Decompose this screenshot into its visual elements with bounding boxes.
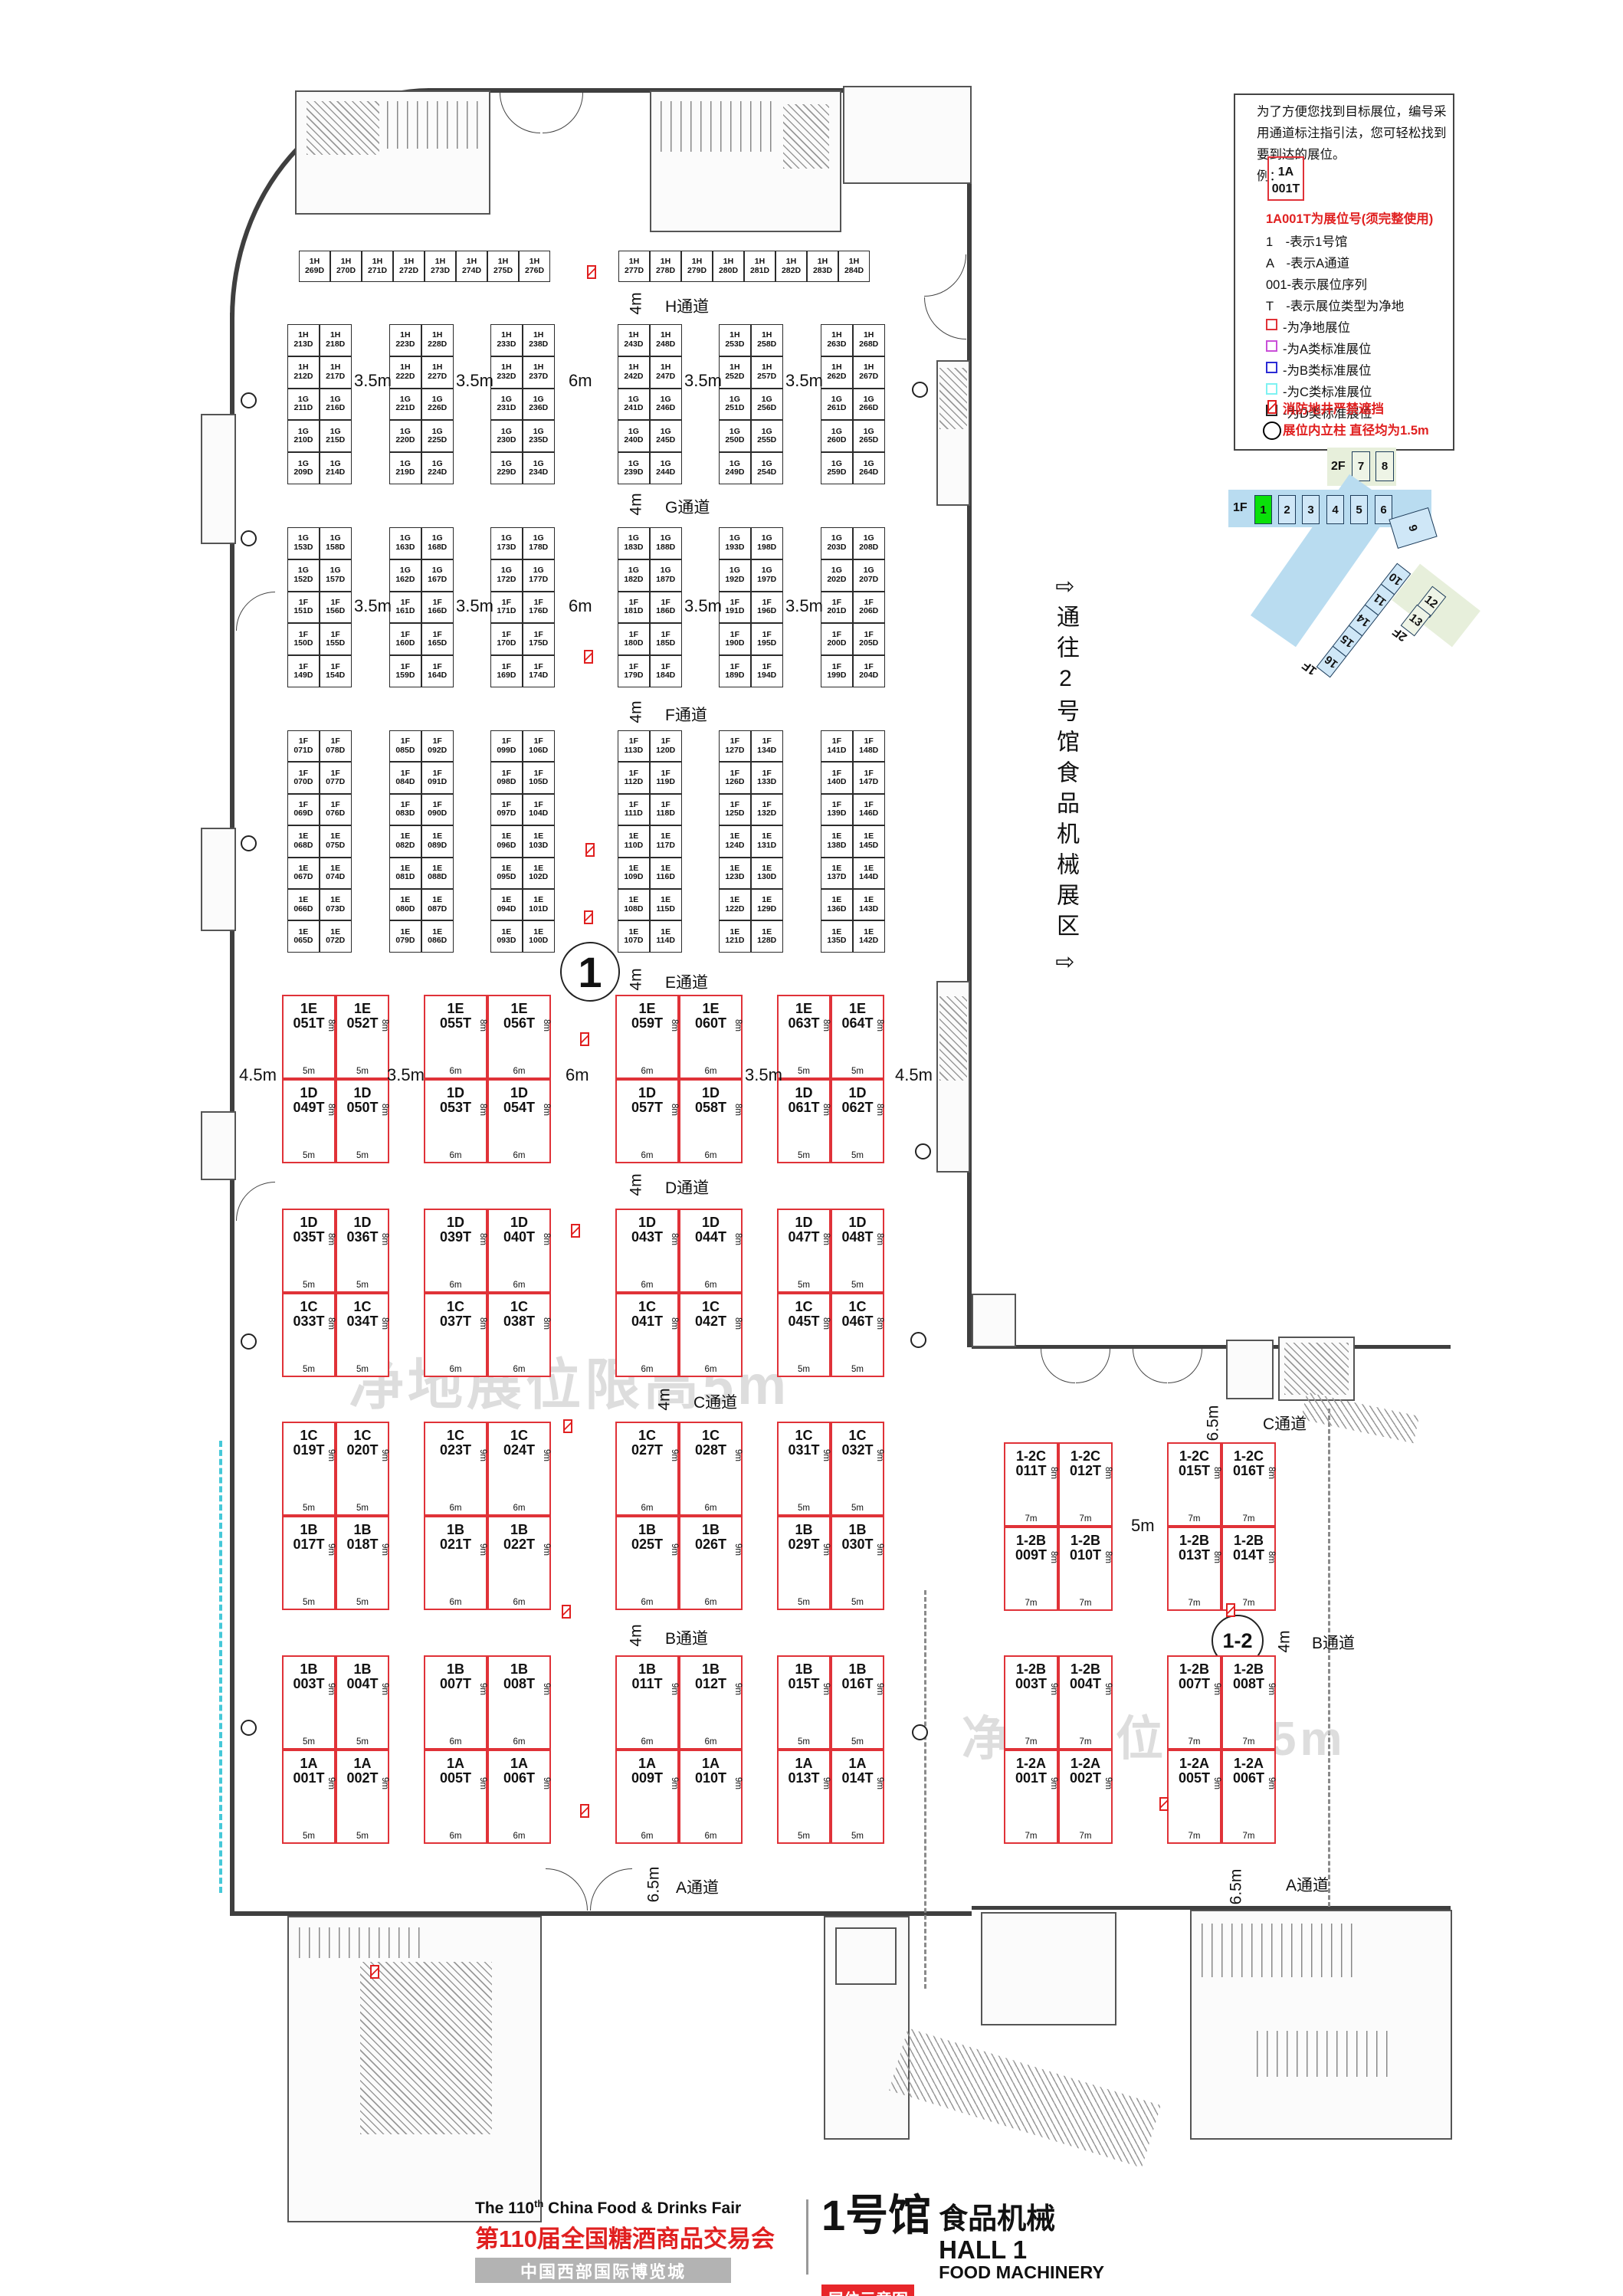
booth-1E-116D: 1E116D xyxy=(650,858,682,889)
booth-1E-110D: 1E110D xyxy=(618,825,650,857)
booth-1C-033T: 1C033T5m8m xyxy=(282,1293,336,1377)
booth-1-2B-010T: 1-2B010T7m8m xyxy=(1058,1527,1113,1611)
booth-1F-181D: 1F181D xyxy=(618,592,650,624)
booth-1H-212D: 1H212D xyxy=(287,356,320,389)
column-circle-1 xyxy=(241,392,257,408)
booth-1C-038T: 1C038T6m8m xyxy=(487,1293,551,1377)
booth-1D-053T: 1D053T6m8m xyxy=(424,1079,487,1163)
booth-1F-076D: 1F076D xyxy=(320,794,352,825)
booth-1D-050T: 1D050T5m8m xyxy=(336,1079,389,1163)
legend-fire-icon xyxy=(1267,400,1277,414)
aisle-dim-C通道: 4m xyxy=(656,1388,674,1410)
booth-1F-106D: 1F106D xyxy=(523,730,555,762)
booth-1E-124D: 1E124D xyxy=(719,825,751,857)
booth-1G-215D: 1G215D xyxy=(320,420,352,452)
booth-1E-144D: 1E144D xyxy=(853,858,885,889)
booth-1F-180D: 1F180D xyxy=(618,623,650,655)
booth-1B-029T: 1B029T5m9m xyxy=(777,1516,831,1610)
booth-1E-108D: 1E108D xyxy=(618,889,650,920)
booth-1E-088D: 1E088D xyxy=(421,858,454,889)
booth-1E-072D: 1E072D xyxy=(320,920,352,952)
booth-1H-243D: 1H243D xyxy=(618,324,650,356)
booth-1G-240D: 1G240D xyxy=(618,420,650,452)
booth-1F-199D: 1F199D xyxy=(821,655,853,687)
booth-1F-176D: 1F176D xyxy=(523,592,555,624)
booth-1C-045T: 1C045T5m8m xyxy=(777,1293,831,1377)
aisle-dim-E通道: 4m xyxy=(628,968,646,990)
bottomleft-toilet-stalls xyxy=(299,1927,421,1958)
annex-stair-hatch xyxy=(1284,1343,1349,1395)
booth-1H-270D: 1H270D xyxy=(330,251,362,282)
booth-1G-241D: 1G241D xyxy=(618,389,650,421)
booth-1H-218D: 1H218D xyxy=(320,324,352,356)
booth-1E-065D: 1E065D xyxy=(287,920,320,952)
booth-1F-085D: 1F085D xyxy=(389,730,421,762)
column-circle-4 xyxy=(241,1333,257,1350)
door-arc-annex-corridor-3 xyxy=(1133,1349,1167,1383)
booth-1E-117D: 1E117D xyxy=(650,825,682,857)
booth-1B-015T: 1B015T5m9m xyxy=(777,1655,831,1750)
corridor-note: ⇨ 通往2号馆食品机械展区 ⇨ xyxy=(1047,573,1084,976)
block-topright xyxy=(843,86,972,184)
booth-1B-017T: 1B017T5m9m xyxy=(282,1516,336,1610)
band3-gap-dim-1: 3.5m xyxy=(456,596,493,616)
annex-aisle-label-A通道: A通道 xyxy=(1286,1873,1329,1896)
booth-1E-103D: 1E103D xyxy=(523,825,555,857)
stairs-hatch-topcenter xyxy=(783,104,829,169)
legend-key-2: A -表示A通道 xyxy=(1266,253,1349,271)
booth-1C-023T: 1C023T6m9m xyxy=(424,1422,487,1516)
legend-type-label-2: -为B类标准展位 xyxy=(1283,360,1372,379)
booth-1H-263D: 1H263D xyxy=(821,324,853,356)
booth-1D-044T: 1D044T6m8m xyxy=(679,1209,743,1293)
booth-1F-155D: 1F155D xyxy=(320,623,352,655)
aisle-label-B通道: B通道 xyxy=(665,1626,708,1649)
legend-example-line1: 1A xyxy=(1269,164,1303,181)
booth-1H-272D: 1H272D xyxy=(393,251,425,282)
booth-1G-220D: 1G220D xyxy=(389,420,421,452)
annex-aisle-dim-C通道: 6.5m xyxy=(1204,1405,1222,1442)
booth-1E-063T: 1E063T5m8m xyxy=(777,995,831,1079)
booth-1F-156D: 1F156D xyxy=(320,592,352,624)
booth-1B-030T: 1B030T5m9m xyxy=(831,1516,884,1610)
annex-aisle-label-B通道: B通道 xyxy=(1312,1631,1355,1654)
bottomleft-stairs-hatch xyxy=(360,1962,492,2134)
booth-1G-261D: 1G261D xyxy=(821,389,853,421)
fire-well-icon-8 xyxy=(580,1804,589,1818)
band2-gap-dim-4: 3.5m xyxy=(785,371,823,391)
booth-1C-041T: 1C041T6m8m xyxy=(615,1293,679,1377)
legend-example-line2: 001T xyxy=(1269,181,1303,198)
booth-1E-145D: 1E145D xyxy=(853,825,885,857)
booth-1G-202D: 1G202D xyxy=(821,559,853,592)
booth-1F-206D: 1F206D xyxy=(853,592,885,624)
booth-1G-167D: 1G167D xyxy=(421,559,454,592)
fire-well-icon-3 xyxy=(584,910,593,924)
booth-1F-159D: 1F159D xyxy=(389,655,421,687)
annex-boundary-dashed-right xyxy=(1328,1409,1330,1907)
annex-aisle-label-C通道: C通道 xyxy=(1263,1412,1307,1435)
tband-gap-dim-2: 6m xyxy=(566,1065,589,1085)
booth-1E-100D: 1E100D xyxy=(523,920,555,952)
booth-1E-123D: 1E123D xyxy=(719,858,751,889)
booth-1F-174D: 1F174D xyxy=(523,655,555,687)
booth-1F-171D: 1F171D xyxy=(490,592,523,624)
booth-1G-249D: 1G249D xyxy=(719,452,751,484)
booth-1D-036T: 1D036T5m8m xyxy=(336,1209,389,1293)
booth-1H-237D: 1H237D xyxy=(523,356,555,389)
annex-aisle-dim-B通道: 4m xyxy=(1276,1630,1294,1652)
legend-example-booth: 1A 001T xyxy=(1267,156,1304,201)
booth-1F-090D: 1F090D xyxy=(421,794,454,825)
booth-1E-130D: 1E130D xyxy=(751,858,783,889)
legend-key-1: 1 -表示1号馆 xyxy=(1266,231,1347,250)
booth-1D-043T: 1D043T6m8m xyxy=(615,1209,679,1293)
booth-1B-025T: 1B025T6m9m xyxy=(615,1516,679,1610)
booth-1-2A-002T: 1-2A002T7m9m xyxy=(1058,1750,1113,1844)
annex-toilet-stalls xyxy=(1202,1924,1355,1977)
booth-1F-149D: 1F149D xyxy=(287,655,320,687)
booth-1F-105D: 1F105D xyxy=(523,762,555,793)
booth-1E-052T: 1E052T5m8m xyxy=(336,995,389,1079)
annex-ramp-hatch xyxy=(1301,1392,1419,1443)
booth-1B-012T: 1B012T6m9m xyxy=(679,1655,743,1750)
booth-1E-131D: 1E131D xyxy=(751,825,783,857)
legend-fire-note: 消防地井严禁遮挡 xyxy=(1283,399,1384,417)
booth-1H-258D: 1H258D xyxy=(751,324,783,356)
booth-1G-231D: 1G231D xyxy=(490,389,523,421)
left-wall-block-2 xyxy=(201,828,236,931)
booth-1F-151D: 1F151D xyxy=(287,592,320,624)
aisle-label-E通道: E通道 xyxy=(665,970,708,993)
booth-1F-133D: 1F133D xyxy=(751,762,783,793)
booth-1H-223D: 1H223D xyxy=(389,324,421,356)
booth-1A-013T: 1A013T5m9m xyxy=(777,1750,831,1844)
booth-1A-005T: 1A005T6m9m xyxy=(424,1750,487,1844)
booth-1E-128D: 1E128D xyxy=(751,920,783,952)
aisle-label-C通道: C通道 xyxy=(693,1390,737,1413)
booth-1-2B-014T: 1-2B014T7m8m xyxy=(1221,1527,1276,1611)
booth-1H-217D: 1H217D xyxy=(320,356,352,389)
booth-1A-010T: 1A010T6m9m xyxy=(679,1750,743,1844)
booth-1H-278D: 1H278D xyxy=(650,251,681,282)
legend-key-3: 001-表示展位序列 xyxy=(1266,274,1367,293)
booth-1G-178D: 1G178D xyxy=(523,527,555,559)
minimap-hall-5: 5 xyxy=(1350,495,1368,524)
booth-1F-148D: 1F148D xyxy=(853,730,885,762)
band3-gap-dim-3: 3.5m xyxy=(684,596,722,616)
booth-1H-279D: 1H279D xyxy=(681,251,713,282)
booth-1C-031T: 1C031T5m9m xyxy=(777,1422,831,1516)
booth-1G-245D: 1G245D xyxy=(650,420,682,452)
legend-type-label-0: -为净地展位 xyxy=(1283,317,1350,336)
booth-1B-004T: 1B004T5m9m xyxy=(336,1655,389,1750)
booth-1E-121D: 1E121D xyxy=(719,920,751,952)
booth-1H-222D: 1H222D xyxy=(389,356,421,389)
door-arc-annex-corridor-4 xyxy=(1168,1349,1202,1383)
booth-1E-056T: 1E056T6m8m xyxy=(487,995,551,1079)
booth-1B-021T: 1B021T6m9m xyxy=(424,1516,487,1610)
booth-1G-221D: 1G221D xyxy=(389,389,421,421)
legend-swatch-0 xyxy=(1266,319,1277,330)
booth-1E-102D: 1E102D xyxy=(523,858,555,889)
bottom-elevator-cab xyxy=(835,1927,897,1985)
booth-1F-119D: 1F119D xyxy=(650,762,682,793)
booth-1E-109D: 1E109D xyxy=(618,858,650,889)
booth-1F-160D: 1F160D xyxy=(389,623,421,655)
booth-1F-118D: 1F118D xyxy=(650,794,682,825)
aisle-dim-D通道: 4m xyxy=(628,1173,646,1196)
booth-1G-225D: 1G225D xyxy=(421,420,454,452)
legend-intro-line-1: 为了方便您找到目标展位，编号采 xyxy=(1257,101,1447,120)
column-circle-7 xyxy=(241,1720,257,1736)
footer-venue-bar: 中国西部国际博览城 xyxy=(475,2258,731,2283)
footer-fair-en: The 110th China Food & Drinks Fair xyxy=(475,2198,797,2218)
booth-1E-135D: 1E135D xyxy=(821,920,853,952)
booth-1F-185D: 1F185D xyxy=(650,623,682,655)
door-arc-left-wall-2 xyxy=(236,1182,275,1221)
booth-1G-203D: 1G203D xyxy=(821,527,853,559)
booth-1B-003T: 1B003T5m9m xyxy=(282,1655,336,1750)
booth-1E-066D: 1E066D xyxy=(287,889,320,920)
booth-1G-187D: 1G187D xyxy=(650,559,682,592)
booth-1E-075D: 1E075D xyxy=(320,825,352,857)
booth-1F-140D: 1F140D xyxy=(821,762,853,793)
booth-1G-152D: 1G152D xyxy=(287,559,320,592)
booth-1-2B-008T: 1-2B008T7m9m xyxy=(1221,1655,1276,1750)
booth-1E-142D: 1E142D xyxy=(853,920,885,952)
booth-1H-273D: 1H273D xyxy=(425,251,456,282)
booth-1F-111D: 1F111D xyxy=(618,794,650,825)
booth-1C-034T: 1C034T5m8m xyxy=(336,1293,389,1377)
minimap-hall-7: 7 xyxy=(1352,451,1370,481)
booth-1F-112D: 1F112D xyxy=(618,762,650,793)
minimap-hall-3: 3 xyxy=(1302,495,1320,524)
booth-1E-129D: 1E129D xyxy=(751,889,783,920)
booth-1F-092D: 1F092D xyxy=(421,730,454,762)
booth-1F-191D: 1F191D xyxy=(719,592,751,624)
booth-1H-281D: 1H281D xyxy=(744,251,775,282)
annex-bottom-block xyxy=(981,1912,1116,2025)
band3-gap-dim-0: 3.5m xyxy=(354,596,392,616)
bottom-ramp-hatch xyxy=(889,2028,1161,2167)
booth-1D-047T: 1D047T5m8m xyxy=(777,1209,831,1293)
minimap-1f-label: 1F xyxy=(1233,501,1248,515)
booth-1B-008T: 1B008T6m9m xyxy=(487,1655,551,1750)
booth-1H-276D: 1H276D xyxy=(519,251,550,282)
right-stair-hatch-2 xyxy=(939,996,967,1081)
fire-well-icon-7 xyxy=(562,1605,571,1619)
booth-1G-183D: 1G183D xyxy=(618,527,650,559)
band3-gap-dim-4: 3.5m xyxy=(785,596,823,616)
booth-1G-192D: 1G192D xyxy=(719,559,751,592)
booth-1F-078D: 1F078D xyxy=(320,730,352,762)
booth-1F-195D: 1F195D xyxy=(751,623,783,655)
legend-column-note: 展位内立柱 直径均为1.5m xyxy=(1283,420,1429,438)
booth-1D-048T: 1D048T5m8m xyxy=(831,1209,884,1293)
booth-1F-189D: 1F189D xyxy=(719,655,751,687)
booth-1G-188D: 1G188D xyxy=(650,527,682,559)
booth-1F-083D: 1F083D xyxy=(389,794,421,825)
booth-1G-158D: 1G158D xyxy=(320,527,352,559)
booth-1C-027T: 1C027T6m9m xyxy=(615,1422,679,1516)
booth-1E-055T: 1E055T6m8m xyxy=(424,995,487,1079)
booth-1G-230D: 1G230D xyxy=(490,420,523,452)
booth-1E-093D: 1E093D xyxy=(490,920,523,952)
booth-1B-016T: 1B016T5m9m xyxy=(831,1655,884,1750)
booth-1G-236D: 1G236D xyxy=(523,389,555,421)
booth-1G-226D: 1G226D xyxy=(421,389,454,421)
footer-hall-en: HALL 1 xyxy=(939,2237,1104,2262)
booth-1G-254D: 1G254D xyxy=(751,452,783,484)
fire-well-icon-2 xyxy=(585,843,595,857)
right-wall-connector xyxy=(972,1294,1016,1347)
booth-1F-091D: 1F091D xyxy=(421,762,454,793)
booth-1E-081D: 1E081D xyxy=(389,858,421,889)
booth-1G-172D: 1G172D xyxy=(490,559,523,592)
booth-1G-224D: 1G224D xyxy=(421,452,454,484)
booth-1-2B-013T: 1-2B013T7m8m xyxy=(1167,1527,1221,1611)
booth-1H-262D: 1H262D xyxy=(821,356,853,389)
column-circle-6 xyxy=(915,1143,931,1159)
booth-1E-095D: 1E095D xyxy=(490,858,523,889)
booth-1B-011T: 1B011T6m9m xyxy=(615,1655,679,1750)
booth-1F-146D: 1F146D xyxy=(853,794,885,825)
corridor-arrow-bottom: ⇨ xyxy=(1047,949,1084,976)
booth-1E-115D: 1E115D xyxy=(650,889,682,920)
booth-1-2B-004T: 1-2B004T7m9m xyxy=(1058,1655,1113,1750)
column-circle-8 xyxy=(912,1724,928,1740)
booth-1G-211D: 1G211D xyxy=(287,389,320,421)
fire-well-icon-5 xyxy=(571,1224,580,1238)
footer-divider xyxy=(806,2199,808,2275)
aisle-dim-F通道: 4m xyxy=(628,700,646,723)
booth-1F-097D: 1F097D xyxy=(490,794,523,825)
aisle-label-D通道: D通道 xyxy=(665,1176,709,1199)
booth-1E-051T: 1E051T5m8m xyxy=(282,995,336,1079)
booth-1E-080D: 1E080D xyxy=(389,889,421,920)
fire-well-icon-11 xyxy=(370,1965,379,1979)
booth-1F-104D: 1F104D xyxy=(523,794,555,825)
tband-gap-dim-3: 3.5m xyxy=(745,1065,782,1085)
annex-boundary-dashed-left xyxy=(924,1590,926,1989)
legend-swatch-3 xyxy=(1266,383,1277,395)
booth-1C-046T: 1C046T5m8m xyxy=(831,1293,884,1377)
column-circle-3 xyxy=(241,835,257,851)
legend-column-icon xyxy=(1263,421,1281,440)
aisle-label-G通道: G通道 xyxy=(665,495,710,518)
booth-1H-233D: 1H233D xyxy=(490,324,523,356)
aisle-dim-H通道: 4m xyxy=(628,292,646,314)
booth-1A-002T: 1A002T5m9m xyxy=(336,1750,389,1844)
booth-1F-166D: 1F166D xyxy=(421,592,454,624)
booth-1H-247D: 1H247D xyxy=(650,356,682,389)
fire-well-icon-4 xyxy=(580,1032,589,1046)
booth-1E-060T: 1E060T6m8m xyxy=(679,995,743,1079)
booth-1A-006T: 1A006T6m9m xyxy=(487,1750,551,1844)
booth-1G-251D: 1G251D xyxy=(719,389,751,421)
booth-1F-164D: 1F164D xyxy=(421,655,454,687)
door-arc-annex-corridor-1 xyxy=(1041,1349,1075,1383)
booth-1G-260D: 1G260D xyxy=(821,420,853,452)
booth-1F-184D: 1F184D xyxy=(650,655,682,687)
booth-1G-168D: 1G168D xyxy=(421,527,454,559)
tband-gap-dim-1: 3.5m xyxy=(387,1065,425,1085)
booth-1C-028T: 1C028T6m9m xyxy=(679,1422,743,1516)
aisle-dim-B通道: 4m xyxy=(628,1624,646,1646)
booth-1G-259D: 1G259D xyxy=(821,452,853,484)
booth-1E-136D: 1E136D xyxy=(821,889,853,920)
toilet-stalls-topleft xyxy=(387,101,479,149)
annex-toilet-stalls-2 xyxy=(1257,2031,1395,2077)
band2-gap-dim-0: 3.5m xyxy=(354,371,392,391)
booth-1D-049T: 1D049T5m8m xyxy=(282,1079,336,1163)
booth-1H-253D: 1H253D xyxy=(719,324,751,356)
booth-1D-058T: 1D058T6m8m xyxy=(679,1079,743,1163)
booth-1G-219D: 1G219D xyxy=(389,452,421,484)
minimap-2f-label: 2F xyxy=(1331,460,1346,474)
booth-1H-227D: 1H227D xyxy=(421,356,454,389)
legend-booth-no-note: 1A001T为展位号(须完整使用) xyxy=(1266,208,1433,227)
booth-1F-147D: 1F147D xyxy=(853,762,885,793)
booth-1C-042T: 1C042T6m8m xyxy=(679,1293,743,1377)
right-stair-hatch-1 xyxy=(939,368,967,429)
booth-1G-216D: 1G216D xyxy=(320,389,352,421)
booth-1F-139D: 1F139D xyxy=(821,794,853,825)
left-wall-block-3 xyxy=(201,1111,236,1180)
booth-1H-282D: 1H282D xyxy=(775,251,807,282)
door-arc-bottom-2 xyxy=(590,1868,632,1911)
booth-1E-073D: 1E073D xyxy=(320,889,352,920)
aisle-label-H通道: H通道 xyxy=(665,294,709,317)
booth-1F-077D: 1F077D xyxy=(320,762,352,793)
booth-1F-069D: 1F069D xyxy=(287,794,320,825)
booth-1D-062T: 1D062T5m8m xyxy=(831,1079,884,1163)
annex-mid-gap-dim: 5m xyxy=(1131,1516,1155,1536)
booth-1H-280D: 1H280D xyxy=(713,251,744,282)
booth-1E-137D: 1E137D xyxy=(821,858,853,889)
booth-1G-157D: 1G157D xyxy=(320,559,352,592)
booth-1H-242D: 1H242D xyxy=(618,356,650,389)
door-arc-top-entrance-1 xyxy=(500,93,540,133)
booth-1C-037T: 1C037T6m8m xyxy=(424,1293,487,1377)
booth-1F-127D: 1F127D xyxy=(719,730,751,762)
booth-1G-197D: 1G197D xyxy=(751,559,783,592)
booth-1D-040T: 1D040T6m8m xyxy=(487,1209,551,1293)
booth-1F-170D: 1F170D xyxy=(490,623,523,655)
door-arc-left-wall-1 xyxy=(236,592,275,631)
booth-1E-107D: 1E107D xyxy=(618,920,650,952)
booth-1F-125D: 1F125D xyxy=(719,794,751,825)
booth-1E-096D: 1E096D xyxy=(490,825,523,857)
fire-well-icon-1 xyxy=(584,650,593,664)
booth-1-2B-009T: 1-2B009T7m8m xyxy=(1004,1527,1058,1611)
booth-1F-150D: 1F150D xyxy=(287,623,320,655)
booth-1H-252D: 1H252D xyxy=(719,356,751,389)
tband-gap-dim-0: 4.5m xyxy=(239,1065,277,1085)
booth-1H-213D: 1H213D xyxy=(287,324,320,356)
booth-1E-064T: 1E064T5m8m xyxy=(831,995,884,1079)
booth-1E-122D: 1E122D xyxy=(719,889,751,920)
booth-1D-061T: 1D061T5m8m xyxy=(777,1079,831,1163)
booth-1F-141D: 1F141D xyxy=(821,730,853,762)
booth-1G-256D: 1G256D xyxy=(751,389,783,421)
aisle-dim-A通道: 6.5m xyxy=(644,1867,663,1903)
booth-1G-173D: 1G173D xyxy=(490,527,523,559)
booth-1F-205D: 1F205D xyxy=(853,623,885,655)
booth-1G-207D: 1G207D xyxy=(853,559,885,592)
booth-1H-268D: 1H268D xyxy=(853,324,885,356)
